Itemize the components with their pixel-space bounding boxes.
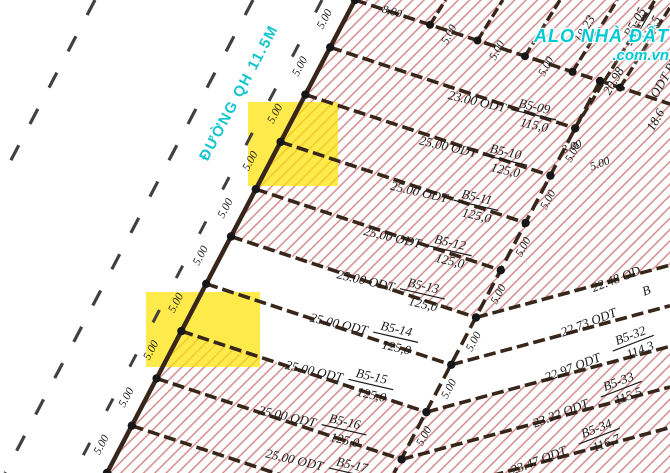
frontage-dim-label: 5.00: [117, 386, 137, 410]
survey-node-dot: [474, 36, 482, 44]
cadastral-map: 5.005.005.005.005.005.005.005.005.005.00…: [0, 0, 670, 473]
survey-node-dot: [472, 313, 480, 321]
frontage-dim-label: 5.00: [191, 244, 211, 268]
survey-node-dot: [497, 266, 505, 274]
screenshot-root: 5.005.005.005.005.005.005.005.005.005.00…: [0, 0, 670, 473]
frontage-dim-label: 5.00: [216, 197, 236, 221]
highlight-box-2: [146, 292, 260, 367]
watermark-brand: ALO NHÀ ĐẤT: [534, 26, 669, 47]
survey-node-dot: [276, 138, 284, 146]
survey-node-dot: [422, 408, 430, 416]
survey-node-dot: [227, 232, 235, 240]
survey-node-dot: [521, 52, 529, 60]
survey-node-dot: [326, 43, 334, 51]
survey-node-dot: [152, 374, 160, 382]
survey-node-dot: [252, 185, 260, 193]
survey-node-dot: [521, 219, 529, 227]
survey-node-dot: [301, 90, 309, 98]
road-dashed-line-1: [0, 0, 95, 181]
survey-node-dot: [447, 361, 455, 369]
frontage-dim-label: 5.00: [290, 55, 310, 79]
survey-node-dot: [128, 422, 136, 430]
survey-node-dot: [177, 327, 185, 335]
frontage-dim-label: 5.00: [92, 433, 112, 457]
survey-node-dot: [202, 280, 210, 288]
survey-node-dot: [426, 21, 434, 29]
watermark: ALO NHÀ ĐẤT .com.vn: [534, 26, 669, 64]
survey-node-dot: [571, 124, 579, 132]
watermark-domain: .com.vn: [534, 47, 669, 64]
survey-node-dot: [568, 68, 576, 76]
survey-node-dot: [397, 455, 405, 463]
survey-node-dot: [546, 171, 554, 179]
